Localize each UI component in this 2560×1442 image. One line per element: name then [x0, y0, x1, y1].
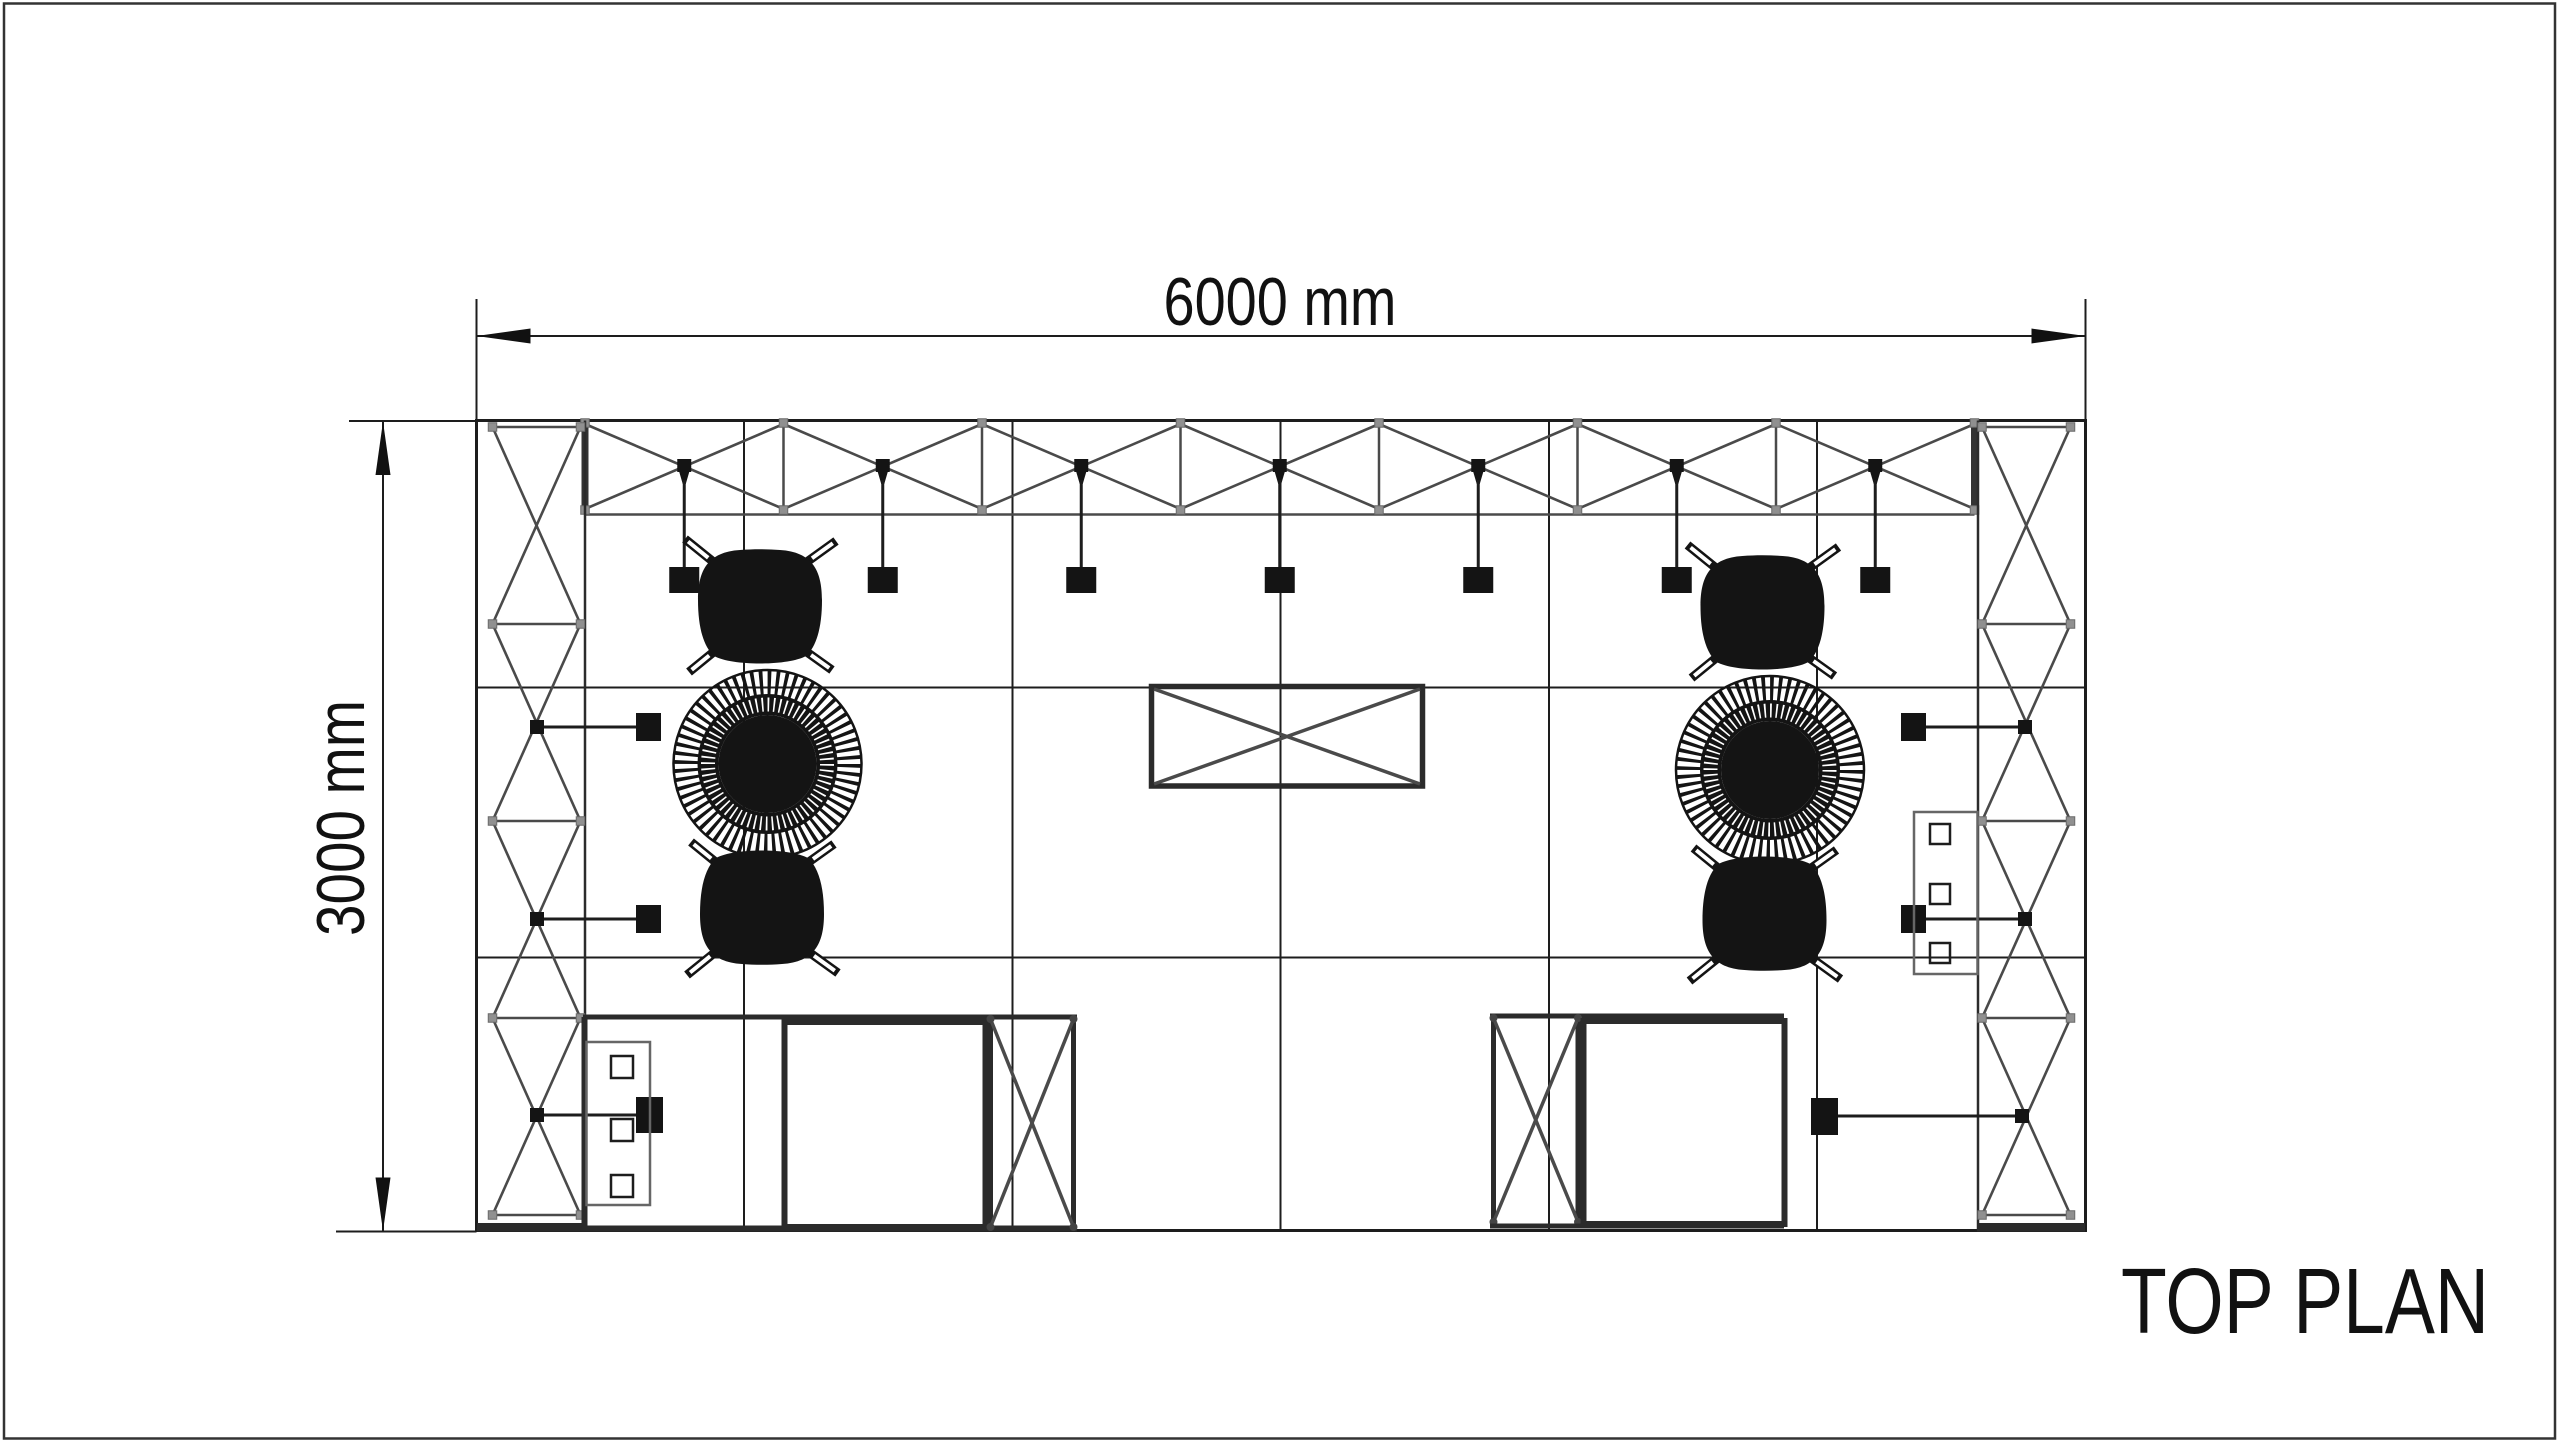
svg-text:3000 mm: 3000 mm [303, 700, 379, 936]
svg-text:TOP PLAN: TOP PLAN [2121, 1249, 2489, 1353]
svg-text:6000 mm: 6000 mm [1164, 264, 1397, 340]
